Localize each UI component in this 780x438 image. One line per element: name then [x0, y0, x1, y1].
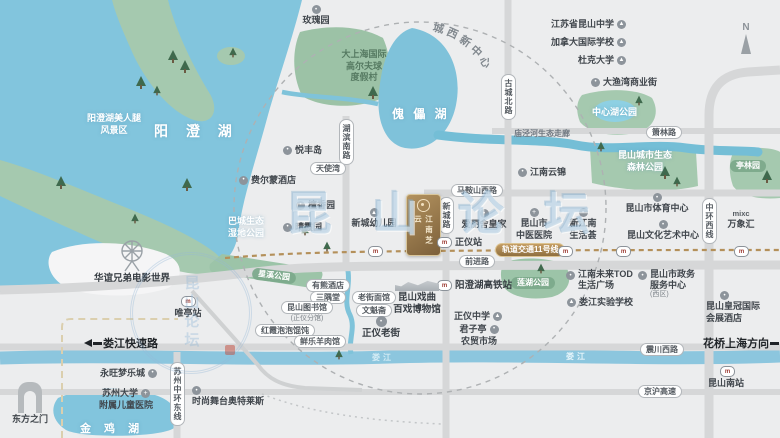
poi-jiangnan-yunjin: • 江南云锦	[518, 167, 566, 178]
road-label-qianjin: 前进路	[459, 255, 495, 268]
road-label-xiaolin: 箫林路	[646, 126, 682, 139]
tree-icon	[635, 96, 643, 106]
stadium-icon: •	[653, 193, 662, 202]
lake-yangchenghu-label: 阳 澄 湖	[154, 122, 239, 140]
tree-icon	[597, 142, 605, 152]
road-label-hubin-south: 湖滨南路	[339, 119, 354, 165]
garden-icon: •	[312, 5, 321, 14]
poi-loujiang-school: ▲ 娄江实验学校	[567, 297, 633, 308]
loujiang-expressway-label: 娄江快速路	[84, 335, 158, 351]
poi-kunshan-south-station: m 昆山南站	[708, 366, 758, 389]
miaojing-corridor-label: 庙泾河生态走廊	[514, 128, 570, 139]
mixc-logo: mixc	[732, 209, 749, 218]
project-card: 江南芝云	[406, 194, 441, 256]
left-arrow-icon	[84, 339, 92, 347]
wetland-park-label: 巴城生态 湿地公园	[220, 216, 272, 239]
lake-jinjihu-label: 金 鸡 湖	[80, 422, 144, 436]
poi-sports-center: • 昆山市体育中心	[616, 193, 698, 214]
poi-huayi-movie-world: 华谊兄弟电影世界	[86, 238, 178, 284]
huaqiao-shanghai-direction-label: 花桥上海方向	[703, 335, 780, 351]
metro-station-icon: m	[616, 246, 631, 257]
shopping-icon: •	[591, 78, 600, 87]
school-icon: ▲	[617, 56, 626, 65]
hotel-icon: •	[239, 176, 248, 185]
poi-tod-plaza: • 江南未来TOD 生活广场	[566, 269, 633, 291]
market-icon: •	[490, 325, 499, 334]
poi-weiting-station: m 唯亭站	[168, 296, 208, 319]
tod-text: 江南未来TOD 生活广场	[578, 269, 633, 291]
school-icon: ▲	[617, 38, 626, 47]
school-icon: ▲	[493, 312, 502, 321]
museum-building-icon	[395, 280, 439, 291]
metro-station-icon: m	[734, 246, 749, 257]
lake-kuileihu-label: 傀 儡 湖	[392, 107, 450, 123]
poi-aeon-mall: 永旺梦乐城 •	[100, 368, 157, 379]
poi-suda-children-hospital: 苏州大学 + 附属儿童医院	[90, 388, 162, 411]
metro-station-icon: m	[437, 237, 452, 248]
hospital-icon: +	[141, 389, 150, 398]
poi-rose-garden: • 玫瑰园	[296, 5, 336, 26]
shopping-icon: •	[148, 369, 157, 378]
tree-icon	[131, 214, 139, 224]
road-label-zhonghuan-east: 苏州中环东线	[170, 362, 185, 426]
school-icon: ▲	[567, 298, 576, 307]
poi-yuefeng-island: • 悦丰岛	[283, 145, 322, 156]
gate-of-orient-icon	[18, 382, 42, 413]
arrow-bar	[93, 342, 102, 345]
road-label-zhenchuan-west: 震川西路	[640, 343, 684, 356]
lianhu-park-label: 莲湖公园	[511, 277, 555, 289]
golf-resort-label: 大上海国际 高尔夫球 度假村	[336, 49, 392, 84]
poi-xianle-mutton: 鲜乐羊肉馆	[294, 335, 346, 348]
tree-icon	[673, 177, 681, 187]
project-name: 江南芝云	[413, 215, 435, 255]
hotel-icon: •	[480, 209, 489, 218]
tree-icon	[56, 176, 66, 189]
government-icon: •	[638, 271, 647, 280]
tree-icon	[229, 48, 237, 58]
hospital-icon: +	[530, 208, 539, 217]
poi-xincheng-kindergarten: ▲ 新城幼儿园	[345, 208, 403, 229]
tree-icon	[335, 350, 343, 360]
poi-crowne-plaza-hotel: • 昆山皇冠国际 会展酒店	[706, 291, 764, 324]
poi-dayuwan-street: • 大渔湾商业街	[591, 77, 657, 88]
scenic-area-label: 阳澄湖美人腿 风景区	[68, 113, 160, 136]
arch-icon: •	[376, 316, 387, 327]
road-label-maanshan-west: 马鞍山西路	[451, 184, 503, 197]
junziting-row: 君子亭 •	[459, 324, 498, 335]
island-icon: •	[283, 146, 292, 155]
poi-canada-school: 加拿大国际学校 ▲	[540, 37, 626, 48]
tree-icon	[136, 76, 146, 89]
loujiang-river-label: 娄江	[372, 352, 394, 363]
poi-zhengyi-station: m 正仪站	[437, 237, 482, 248]
north-arrow-icon	[741, 34, 751, 54]
road-label-gucheng-north: 古城北路	[501, 74, 516, 120]
compass: N	[739, 22, 753, 54]
suda-row: 苏州大学 +	[102, 388, 150, 399]
poi-opera-museum: 昆山戏曲 百戏博物馆	[388, 280, 446, 316]
poi-ks-highschool: 江苏省昆山中学 ▲	[540, 19, 626, 30]
metro-station-icon: m	[368, 246, 383, 257]
tree-icon	[323, 242, 331, 252]
forest-park-label: 昆山城市生态 森林公园	[610, 150, 680, 173]
poi-fairmont-hotel: • 费尔蒙酒店	[239, 175, 296, 186]
project-emblem-icon	[417, 199, 430, 212]
poi-junziting-market: 君子亭 • 农贸市场	[452, 324, 506, 347]
road-label-jinghu-expwy: 京沪高速	[638, 385, 682, 398]
plaza-icon: •	[566, 271, 575, 280]
tree-icon	[762, 170, 772, 183]
poi-tcm-hospital: + 昆山市 中医医院	[510, 208, 558, 241]
school-icon: ▲	[370, 208, 379, 217]
arrow-bar	[770, 342, 779, 345]
tree-icon	[180, 60, 190, 73]
shopping-icon: •	[579, 208, 588, 217]
ferris-wheel-icon	[117, 238, 147, 272]
metro-station-icon: m	[558, 246, 573, 257]
shopping-icon: •	[192, 386, 201, 395]
rail-station-icon: m	[720, 366, 735, 377]
poi-oriental-gate: 东方之门	[5, 382, 55, 425]
poi-kunshan-library: 昆山图书馆 (正仪分馆)	[281, 301, 333, 323]
tree-icon	[182, 178, 192, 191]
poi-art-center: • 昆山文化艺术中心	[620, 220, 706, 241]
poi-zhengyi-old-street: • 正仪老街	[356, 316, 406, 339]
garden-icon: •	[296, 201, 305, 210]
poi-zhengyi-school: 正仪中学 ▲	[454, 311, 502, 322]
location-map: 阳澄湖美人腿 风景区 阳 澄 湖 傀 儡 湖 巴城生态 湿地公园 金 鸡 湖 大…	[0, 0, 780, 438]
compass-n-label: N	[739, 22, 753, 33]
loujiang-river-label: 娄江	[566, 351, 588, 362]
tree-icon	[153, 86, 161, 96]
metro-line11-label: 轨道交通11号线	[495, 243, 565, 257]
poi-xinjiangnan-mall: • 新江南 生活荟	[560, 208, 606, 241]
metro-station-icon: m	[181, 296, 196, 307]
garden-icon: •	[283, 223, 292, 232]
poi-outlets: • 时尚舞台奥特莱斯	[192, 386, 264, 407]
road-label-xincheng: 新城路	[439, 197, 454, 234]
poi-yangchenghu-hsr-station: m 阳澄湖高铁站	[437, 280, 512, 291]
tinglin-garden-label: 亭林园	[730, 160, 766, 172]
tree-icon	[168, 50, 178, 63]
school-icon: ▲	[617, 20, 626, 29]
theater-icon: •	[659, 220, 668, 229]
poi-duke-university: 杜克大学 ▲	[540, 55, 626, 66]
tree-icon	[537, 264, 545, 274]
poi-tanxiang-garden: • 檀香园	[296, 200, 335, 211]
gov-text: 昆山市政务 服务中心 (西区)	[650, 269, 695, 299]
poi-qingxia-garden: • 晴霞园	[283, 222, 322, 233]
poi-mixc: mixc 万象汇	[718, 209, 764, 230]
poi-elysee-royal: • 爱丽舍皇家	[454, 209, 514, 230]
poi-gov-service-center: • 昆山市政务 服务中心 (西区)	[638, 269, 695, 299]
residence-icon: •	[518, 168, 527, 177]
central-lake-park-label: 中心湖公园	[592, 107, 637, 119]
tree-icon	[368, 86, 378, 99]
hotel-icon: •	[720, 291, 729, 300]
poi-angel-bay: 天使湾	[310, 162, 346, 175]
